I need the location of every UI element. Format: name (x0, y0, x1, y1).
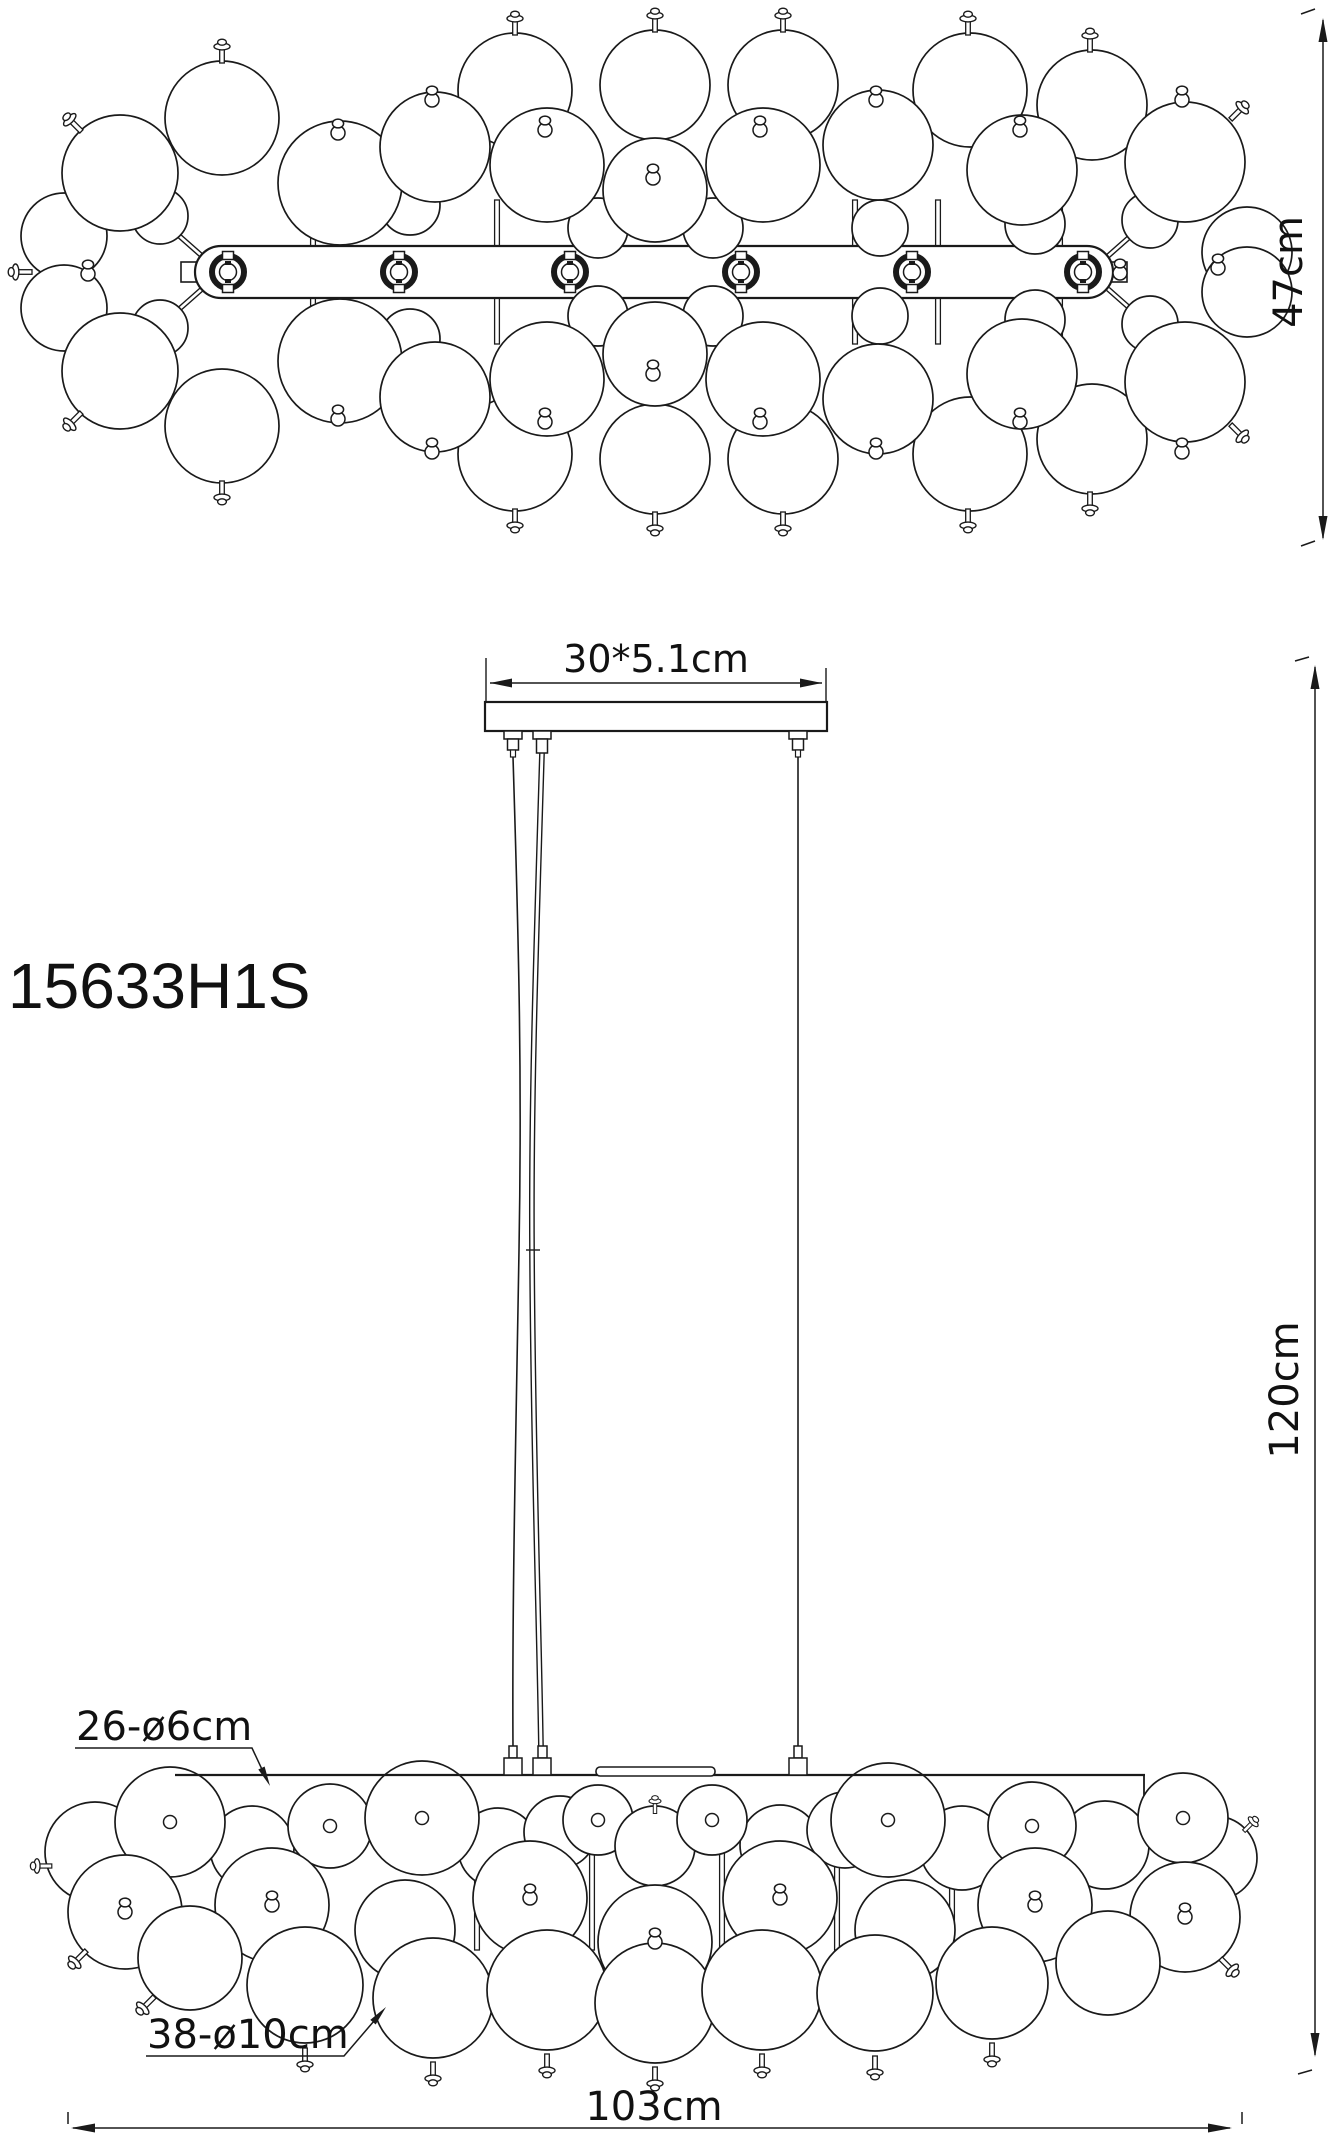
nipple-cap (774, 1884, 785, 1893)
stem (936, 297, 941, 344)
socket-ring-notch (736, 285, 747, 293)
pin-knob (1086, 28, 1095, 34)
dim-canopy-label: 30*5.1cm (563, 637, 749, 681)
socket-ring-inner (904, 264, 921, 281)
pin-knob (651, 8, 660, 14)
socket-ring-inner (562, 264, 579, 281)
arrow-down-icon (1319, 516, 1328, 540)
pin-knob (964, 11, 973, 17)
pin-knob (964, 527, 973, 533)
pin-knob (779, 530, 788, 536)
stem (495, 297, 500, 344)
socket-tab (909, 279, 915, 283)
glass-bubble (852, 288, 908, 344)
pin-stem (513, 509, 518, 523)
arrow-up-icon (1319, 18, 1328, 42)
pin-knob (301, 2066, 310, 2072)
arrow-up-icon (1311, 665, 1320, 689)
pin-stem (653, 18, 658, 32)
nipple-pin (754, 2054, 770, 2078)
nipple-cap (754, 116, 765, 125)
pin-knob (652, 1796, 659, 1801)
nipple-front (1013, 408, 1027, 429)
cord-grip (793, 739, 804, 750)
glass-bubble (852, 200, 908, 256)
socket-ring-notch (736, 252, 747, 260)
pin-knob (218, 39, 227, 45)
socket-ring-inner (220, 264, 237, 281)
cord-grip (789, 731, 807, 739)
nipple-cap (647, 360, 658, 369)
nipple-front (1028, 1891, 1042, 1912)
leader-arrow-icon (258, 1767, 270, 1787)
nipple-cap (647, 164, 658, 173)
socket-tab (738, 279, 744, 283)
socket-tab (567, 261, 573, 265)
nipple-pin (960, 11, 976, 35)
nipple-front (869, 86, 883, 107)
nipple-cap (1114, 259, 1125, 268)
nipple-cap (649, 1928, 660, 1937)
cord-grip (504, 731, 522, 739)
pin-stem (39, 1864, 52, 1868)
pin-stem (990, 2043, 995, 2057)
pin-knob (758, 2072, 767, 2078)
pin-knob (988, 2061, 997, 2067)
nipple-cap (539, 408, 550, 417)
pin-knob (429, 2080, 438, 2086)
socket-ring-notch (394, 252, 405, 260)
nipple-front (425, 86, 439, 107)
socket-ring-notch (907, 285, 918, 293)
nipple-pin (960, 509, 976, 533)
pin-knob (1086, 510, 1095, 516)
nipple-pin (775, 512, 791, 536)
pin-knob (651, 530, 660, 536)
stem (936, 200, 941, 247)
glass-bubble (138, 1906, 242, 2010)
nipple-pin (984, 2043, 1000, 2067)
glass-bubble (165, 369, 279, 483)
glass-bubble (380, 342, 490, 452)
cord-grip (538, 1746, 547, 1758)
extension-tick (1301, 541, 1315, 546)
nipple-cap (119, 1898, 130, 1907)
socket-tab (909, 261, 915, 265)
socket-tab (567, 279, 573, 283)
pin-stem (760, 2054, 765, 2068)
nipple-pin (1082, 492, 1098, 516)
pin-stem (873, 2056, 878, 2070)
nipple-cap (1176, 438, 1187, 447)
nipple-pin (867, 2056, 883, 2080)
nipple-front (1175, 438, 1189, 459)
nipple-cap (266, 1891, 277, 1900)
nipple-pin (507, 509, 523, 533)
nipple-front (648, 1928, 662, 1949)
nipple-cap (426, 86, 437, 95)
pin-stem (513, 21, 518, 35)
nipple-hole (882, 1814, 895, 1827)
nipple-cap (1014, 116, 1025, 125)
cord-grip-tip (511, 750, 516, 757)
nipple-pin (425, 2062, 441, 2086)
nipple-cap (332, 119, 343, 128)
glass-bubble (1125, 102, 1245, 222)
nipple-pin (214, 39, 230, 63)
nipple-front (1175, 86, 1189, 107)
nipple-pin (1082, 28, 1098, 52)
pin-knob (8, 268, 14, 277)
arrow-right-icon (800, 679, 822, 688)
extension-tick (1298, 2070, 1312, 2074)
glass-bubble (1125, 322, 1245, 442)
glass-bubble (1056, 1911, 1160, 2015)
nipple-front (523, 1884, 537, 1905)
nipple-front (81, 260, 95, 281)
pin-knob (779, 8, 788, 14)
fixture-bar (195, 246, 1113, 298)
glass-bubble (487, 1930, 607, 2050)
pin-knob (511, 11, 520, 17)
glass-bubble (595, 1943, 715, 2063)
nipple-front (331, 405, 345, 426)
nipple-cap (1029, 1891, 1040, 1900)
nipple-hole (416, 1812, 429, 1825)
center-plate (596, 1767, 715, 1776)
nipple-pin (214, 481, 230, 505)
cord-grip (508, 739, 519, 750)
arrow-left-icon (71, 2124, 95, 2133)
socket-ring-inner (391, 264, 408, 281)
socket-tab (738, 261, 744, 265)
pin-stem (966, 509, 971, 523)
pin-stem (220, 481, 225, 495)
socket-ring-notch (1078, 285, 1089, 293)
socket-tab (1080, 279, 1086, 283)
nipple-hole (164, 1816, 177, 1829)
pin-stem (653, 1803, 656, 1814)
nipple-front (869, 438, 883, 459)
nipple-front (538, 116, 552, 137)
label-small-bubbles-text: 26-ø6cm (76, 1704, 252, 1750)
canopy-assembly (485, 702, 827, 1750)
glass-bubble (823, 344, 933, 454)
nipple-hole (324, 1820, 337, 1833)
pin-stem (781, 512, 786, 526)
socket-ring-notch (223, 252, 234, 260)
glass-bubble (380, 92, 490, 202)
cord-grip (533, 731, 551, 739)
pin-knob (871, 2074, 880, 2080)
glass-bubble (373, 1938, 493, 2058)
extension-tick (1301, 9, 1315, 14)
top-view-fixture (8, 8, 1292, 536)
arrow-left-icon (490, 679, 512, 688)
glass-bubble (165, 61, 279, 175)
socket-tab (225, 261, 231, 265)
nipple-cap (870, 438, 881, 447)
socket-ring-notch (907, 252, 918, 260)
nipple-pin (8, 264, 32, 280)
label-large-bubbles-text: 38-ø10cm (147, 2012, 349, 2058)
dim-fixture-width: 103cm (68, 2084, 1242, 2133)
pin-stem (1088, 492, 1093, 506)
nipple-front (753, 116, 767, 137)
nipple-cap (1212, 254, 1223, 263)
ceiling-canopy (485, 702, 827, 731)
pin-stem (545, 2054, 550, 2068)
socket-tab (396, 279, 402, 283)
dim-fixture-height-label: 47cm (1266, 216, 1312, 328)
model-number: 15633H1S (8, 950, 310, 1022)
socket-tab (225, 279, 231, 283)
cord-grip (789, 1758, 807, 1775)
nipple-front (646, 360, 660, 381)
dim-fixture-width-label: 103cm (585, 2084, 722, 2130)
nipple-hole (706, 1814, 719, 1827)
stem (495, 200, 500, 247)
nipple-cap (1179, 1903, 1190, 1912)
cord-grip-tip (796, 750, 801, 757)
cord-grip (504, 1758, 522, 1775)
pin-knob (30, 1862, 35, 1870)
nipple-cap (754, 408, 765, 417)
glass-bubble (600, 30, 710, 140)
nipple-cap (1176, 86, 1187, 95)
cord-grip (537, 739, 548, 753)
nipple-front (331, 119, 345, 140)
socket-tab (396, 261, 402, 265)
nipple-hole (1177, 1812, 1190, 1825)
nipple-cap (539, 116, 550, 125)
glass-bubble (817, 1935, 933, 2051)
suspension-wire (513, 757, 520, 1748)
nipple-cap (82, 260, 93, 269)
pin-stem (1088, 38, 1093, 52)
pin-knob (543, 2072, 552, 2078)
extension-tick (1295, 657, 1309, 661)
pin-knob (511, 527, 520, 533)
pin-knob (218, 499, 227, 505)
glass-bubble (603, 138, 707, 242)
socket-ring-notch (394, 285, 405, 293)
pin-stem (653, 2067, 658, 2081)
technical-drawing-canvas: 47cm 30*5.1cm 15633H1S 120cm (0, 0, 1330, 2138)
cord-grip (509, 1746, 517, 1758)
drawing-page: 47cm 30*5.1cm 15633H1S 120cm (0, 0, 1330, 2138)
socket-ring-notch (223, 285, 234, 293)
nipple-pin (647, 8, 663, 32)
nipple-front (538, 408, 552, 429)
nipple-pin (647, 512, 663, 536)
socket-ring-notch (1078, 252, 1089, 260)
nipple-front (425, 438, 439, 459)
nipple-front (753, 408, 767, 429)
glass-bubble (603, 302, 707, 406)
nipple-pin (507, 11, 523, 35)
socket-ring-notch (565, 285, 576, 293)
nipple-front (1211, 254, 1225, 275)
nipple-cap (870, 86, 881, 95)
pin-stem (220, 49, 225, 63)
dim-drop-height-label: 120cm (1262, 1321, 1308, 1458)
glass-bubble (936, 1927, 1048, 2039)
glass-bubble (702, 1930, 822, 2050)
cord-grip (794, 1746, 802, 1758)
socket-ring-inner (1075, 264, 1092, 281)
nipple-front (1178, 1903, 1192, 1924)
pin-stem (781, 18, 786, 32)
nipple-cap (524, 1884, 535, 1893)
socket-ring-inner (733, 264, 750, 281)
nipple-pin (539, 2054, 555, 2078)
socket-ring-notch (565, 252, 576, 260)
pin-stem (653, 512, 658, 526)
pin-stem (966, 21, 971, 35)
nipple-cap (426, 438, 437, 447)
nipple-cap (1014, 408, 1025, 417)
nipple-front (646, 164, 660, 185)
nipple-hole (1026, 1820, 1039, 1833)
cord-grip (533, 1758, 551, 1775)
glass-bubble (600, 404, 710, 514)
arrow-right-icon (1208, 2124, 1232, 2133)
dim-fixture-height: 47cm (1266, 9, 1328, 546)
pin-stem (18, 270, 32, 275)
nipple-front (773, 1884, 787, 1905)
nipple-front (265, 1891, 279, 1912)
nipple-pin (775, 8, 791, 32)
pin-stem (431, 2062, 436, 2076)
nipple-front (118, 1898, 132, 1919)
dim-drop-height: 120cm (1262, 657, 1320, 2074)
nipple-hole (592, 1814, 605, 1827)
nipple-cap (332, 405, 343, 414)
arrow-down-icon (1311, 2033, 1320, 2057)
nipple-front (1113, 259, 1127, 280)
nipple-front (1013, 116, 1027, 137)
socket-tab (1080, 261, 1086, 265)
dim-canopy: 30*5.1cm (486, 637, 826, 701)
